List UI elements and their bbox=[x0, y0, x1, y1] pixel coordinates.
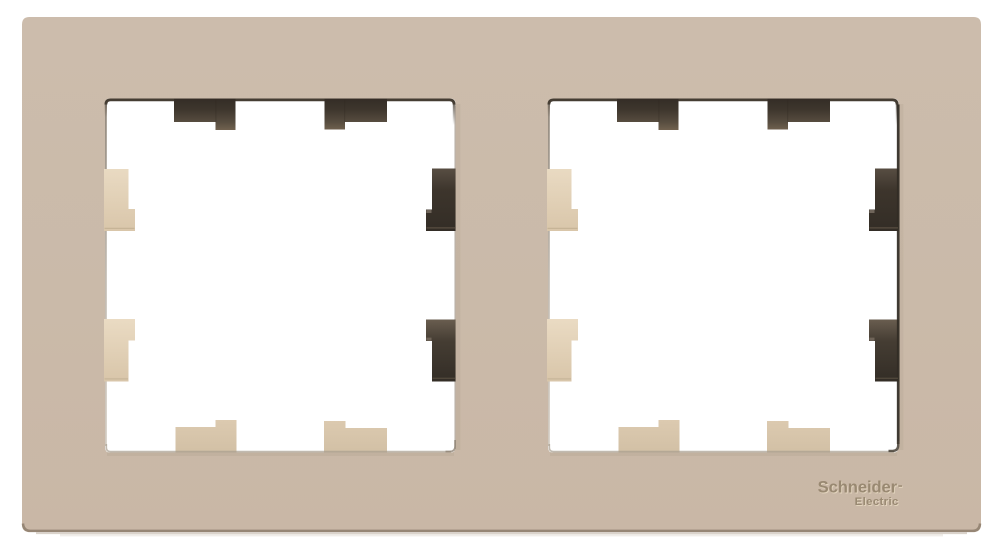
svg-text:Schneider: Schneider bbox=[818, 478, 898, 497]
svg-text:Electric: Electric bbox=[855, 496, 899, 508]
